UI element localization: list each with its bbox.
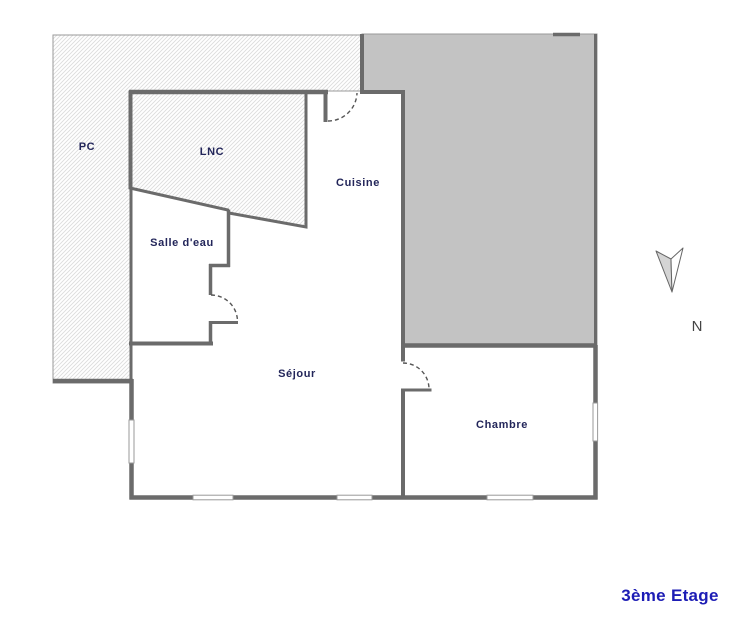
room-label-sejour: Séjour [278, 368, 316, 380]
room-label-chambre: Chambre [476, 419, 528, 431]
compass-north-label: N [692, 318, 703, 335]
north-arrow-right-half [671, 248, 683, 292]
room-label-lnc: LNC [200, 146, 224, 158]
window-sejour-left [129, 420, 134, 463]
gray-zone-area [362, 34, 597, 345]
lnc-room-outline [130, 92, 306, 227]
room-label-pc: PC [79, 141, 95, 153]
window-bottom-1 [193, 495, 233, 500]
north-arrow-icon [656, 248, 683, 292]
door-arc-chambre [403, 363, 429, 389]
floor-title: 3ème Etage [621, 586, 719, 605]
window-bottom-2 [337, 495, 372, 500]
room-label-cuisine: Cuisine [336, 177, 380, 189]
window-chambre-right [593, 403, 598, 441]
door-arc-salle-deau [211, 295, 238, 322]
floor-plan-drawing: PC LNC Cuisine Salle d'eau Séjour Chambr… [0, 0, 752, 618]
window-chambre-bottom [487, 495, 533, 500]
north-arrow-left-half [656, 251, 672, 292]
pc-hatched-zone [53, 35, 363, 383]
room-label-salle-deau: Salle d'eau [150, 237, 214, 249]
floor-plan-page: PC LNC Cuisine Salle d'eau Séjour Chambr… [0, 0, 752, 618]
door-arc-cuisine [328, 93, 357, 121]
